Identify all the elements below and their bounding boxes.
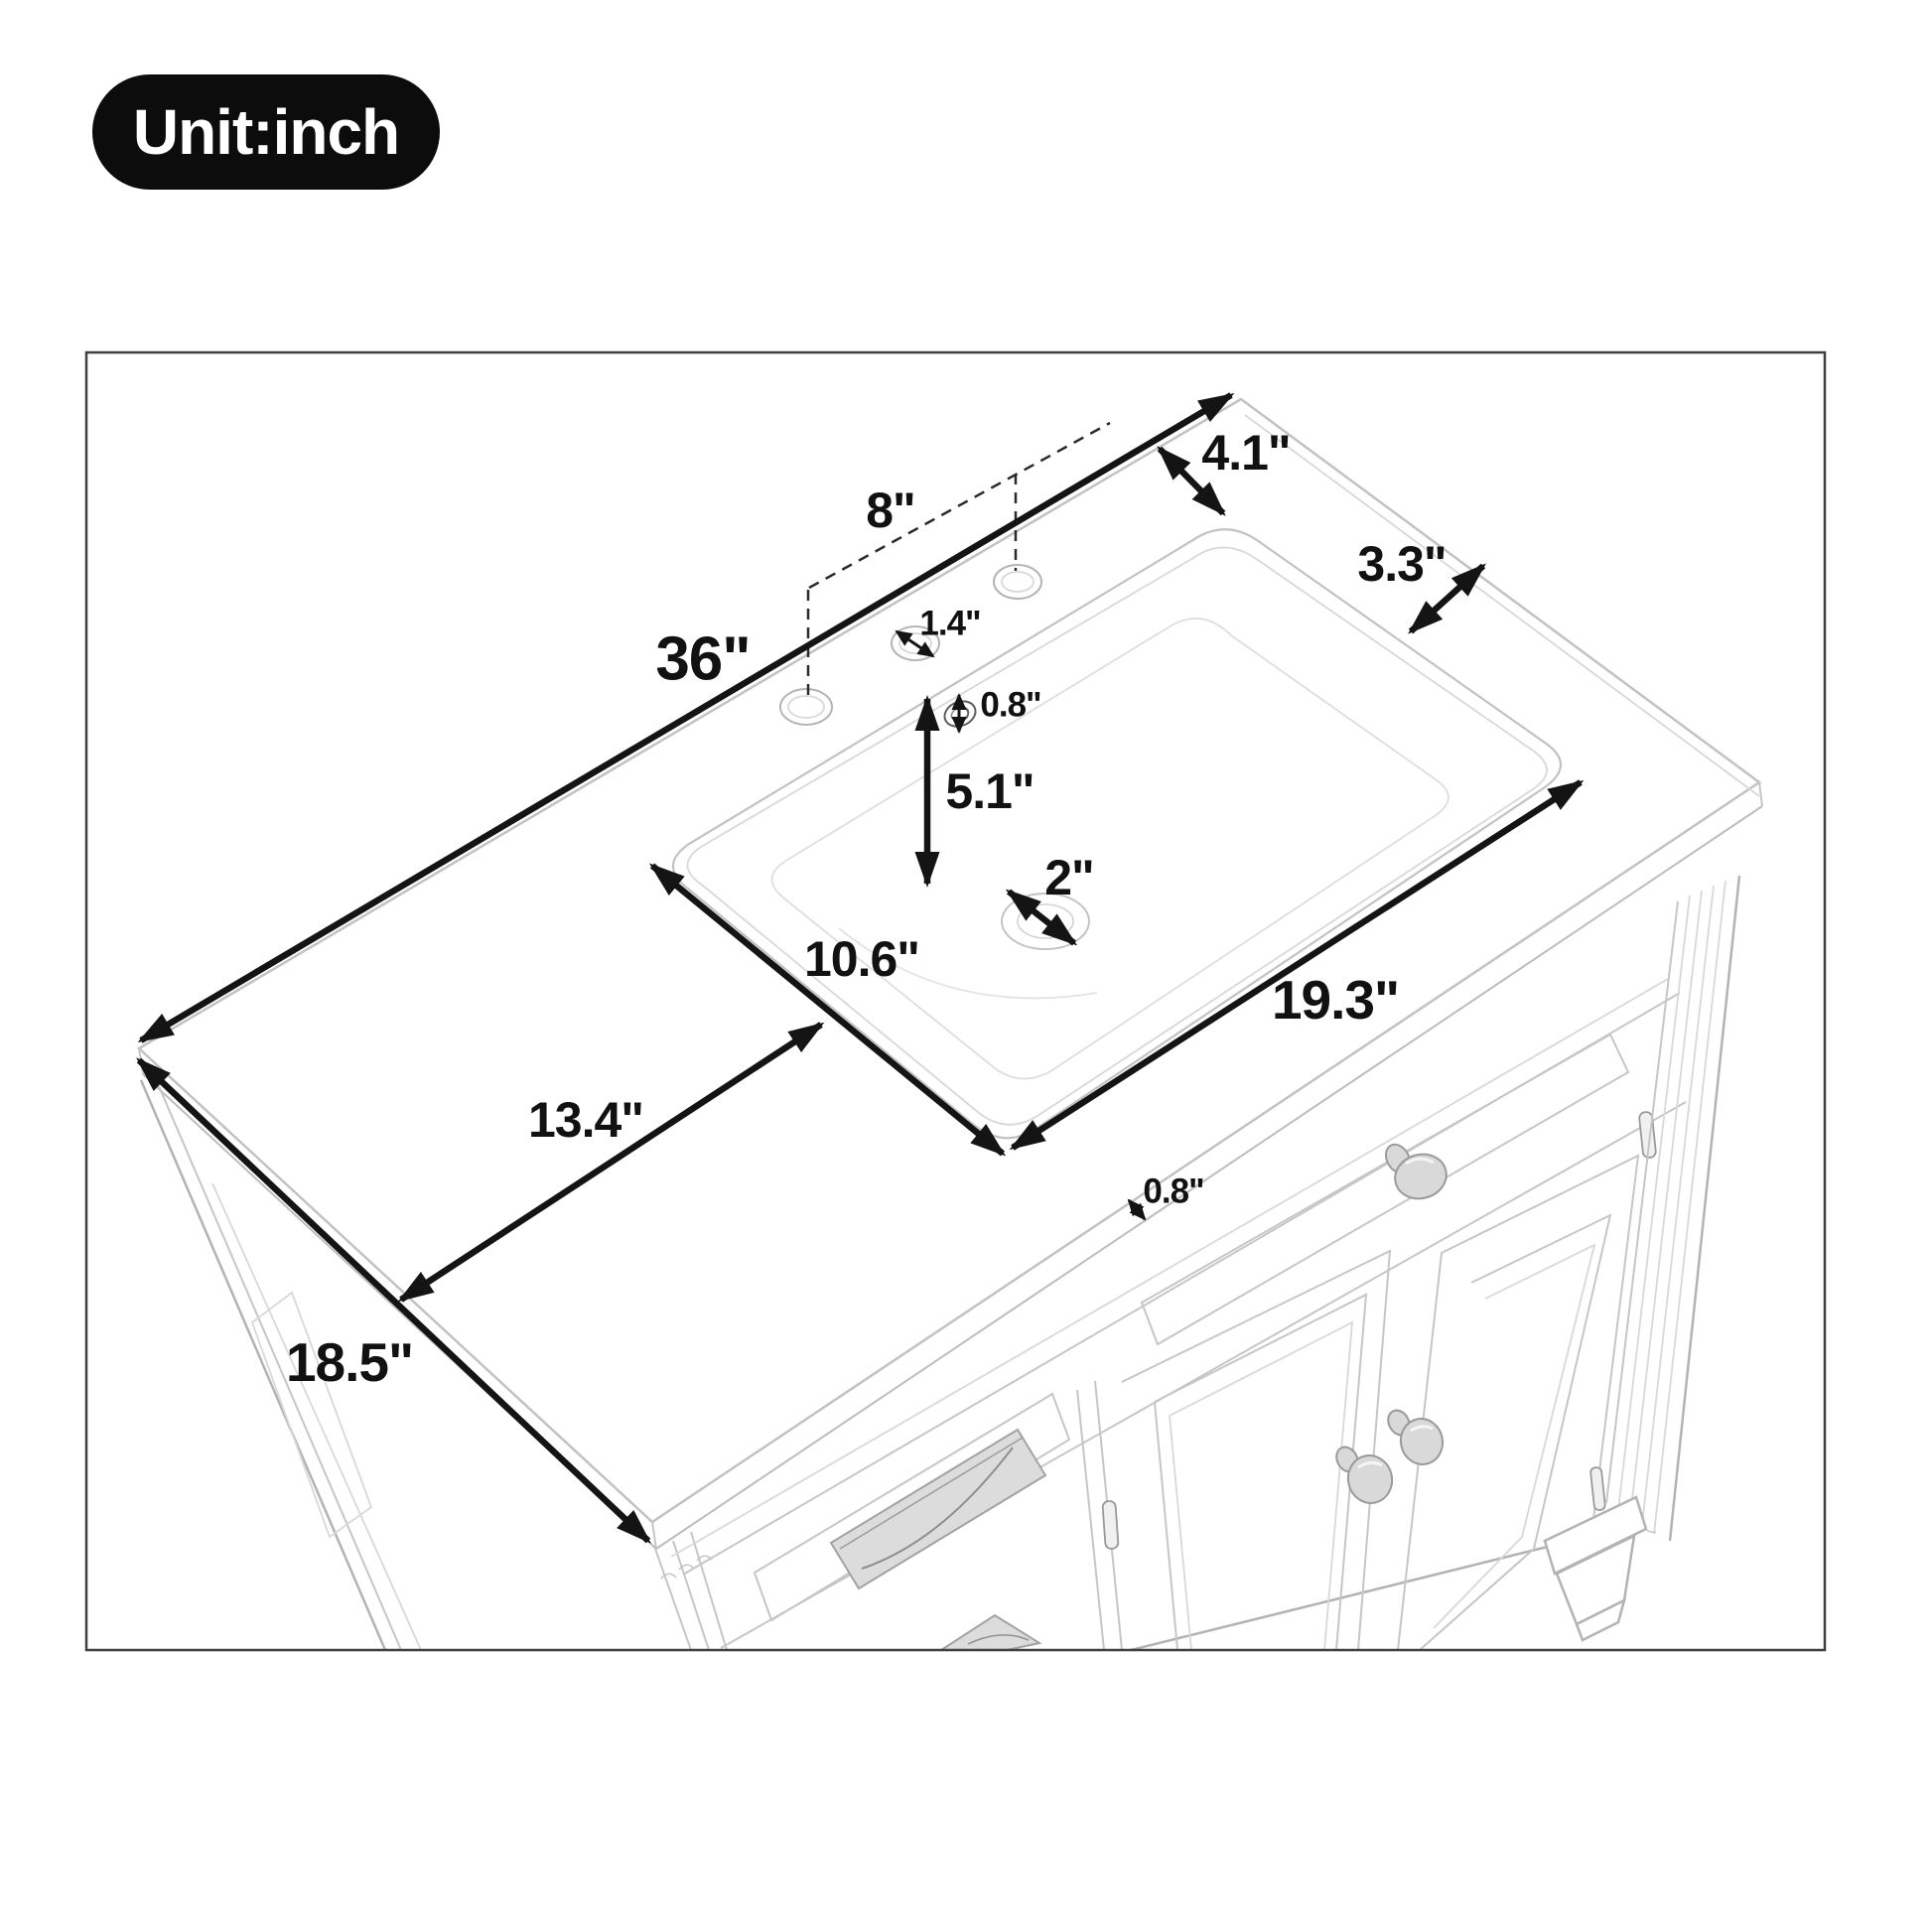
drawer-handle-plate	[831, 1430, 1045, 1588]
vanity-dimension-diagram: 36" 8" 1.4" 0.8" 5.1" 2" 4.1" 3.3" 10.6"…	[0, 0, 1932, 1932]
dimension-label-19-3: 19.3"	[1272, 969, 1399, 1031]
dimension-label-36: 36"	[655, 625, 750, 694]
dimension-label-3-3: 3.3"	[1357, 536, 1446, 592]
drawer-handle-lower	[941, 1615, 1039, 1650]
hinge-icon	[1102, 1501, 1118, 1550]
pilaster-flute	[1642, 886, 1714, 1525]
cabinet-foot	[1545, 1497, 1646, 1640]
drawer-handle-plate	[941, 1615, 1039, 1650]
dimension-label-0-8-thickness: 0.8"	[1143, 1173, 1203, 1211]
dimension-label-1-4: 1.4"	[919, 605, 980, 643]
dimension-label-0-8-overflow: 0.8"	[980, 686, 1040, 725]
dimension-label-10-6: 10.6"	[804, 931, 919, 987]
right-pilaster	[1606, 876, 1739, 1541]
left-door-panel-inner	[1170, 1416, 1191, 1650]
left-door-panel	[1155, 1402, 1177, 1650]
front-left-pilaster	[655, 1549, 691, 1650]
drawer-handle	[831, 1430, 1045, 1588]
dimension-label-4-1: 4.1"	[1201, 425, 1290, 481]
vanity-line-art	[139, 399, 1762, 1650]
hinge-icon	[1590, 1467, 1605, 1511]
countertop-edge	[1759, 782, 1762, 806]
left-door	[1102, 1251, 1396, 1650]
cabinet-bottom-rail	[1131, 1536, 1591, 1650]
dimension-label-13-4: 13.4"	[528, 1092, 643, 1148]
dimension-diagram-page: Unit:inch	[0, 0, 1932, 1932]
dimension-label-2: 2"	[1044, 850, 1094, 905]
door-knob	[1332, 1444, 1396, 1507]
dimension-label-5-1: 5.1"	[945, 763, 1034, 819]
dimension-label-18-5: 18.5"	[286, 1331, 413, 1393]
dimension-label-8: 8"	[866, 483, 915, 538]
drawer-knob	[1381, 1141, 1451, 1204]
front-left-pilaster	[673, 1541, 709, 1650]
front-left-pilaster	[691, 1532, 727, 1650]
door-knob	[1384, 1407, 1447, 1468]
